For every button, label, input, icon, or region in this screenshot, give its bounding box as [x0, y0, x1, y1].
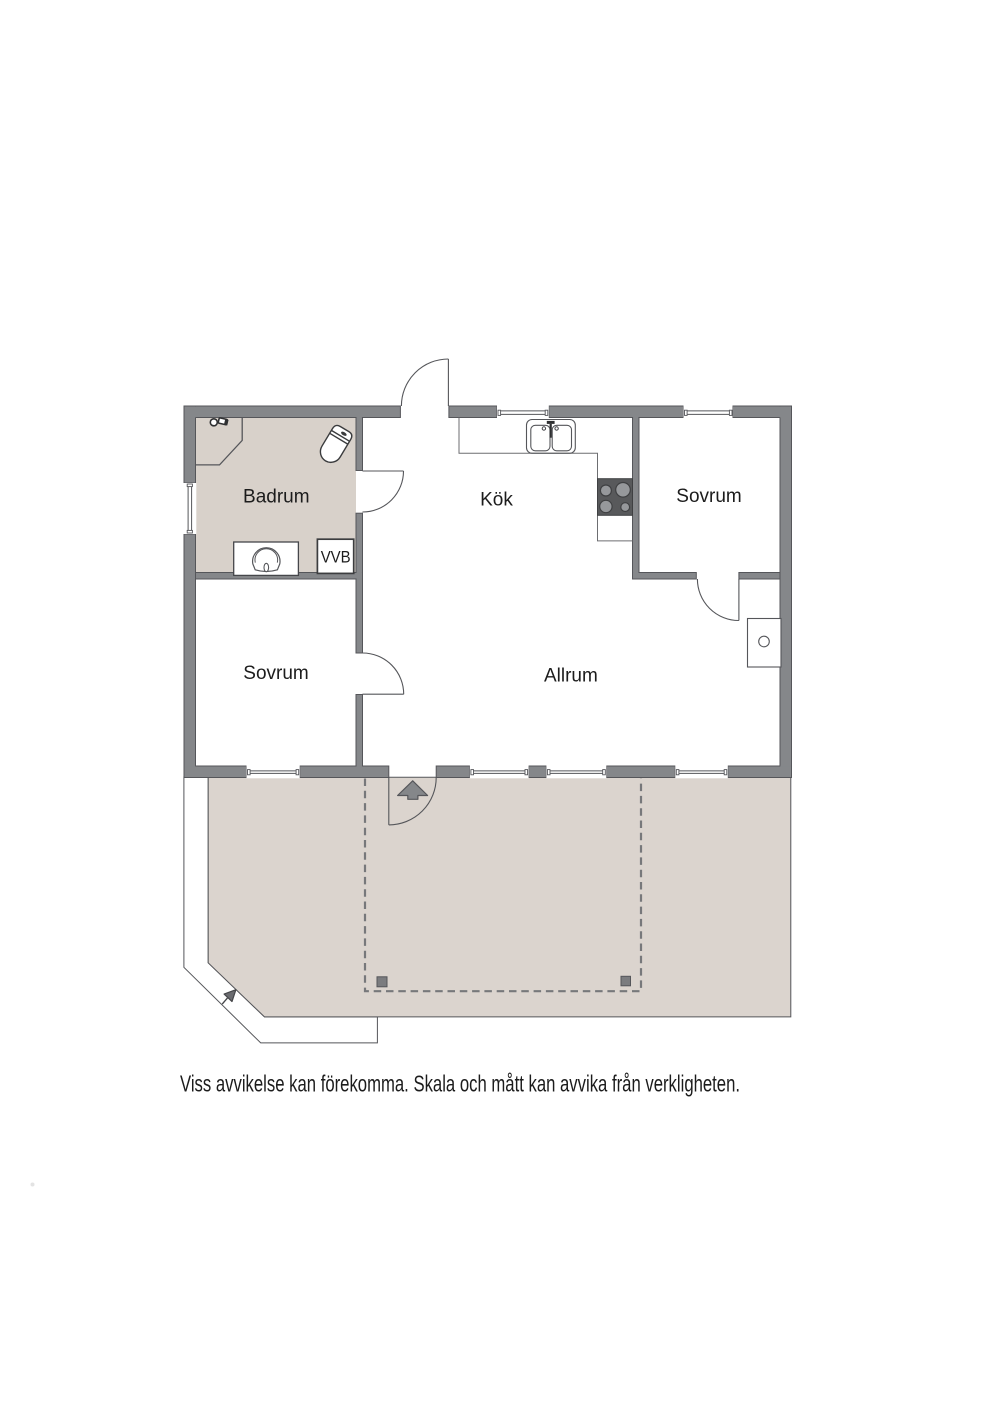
svg-text:VVB: VVB — [321, 549, 351, 567]
svg-text:Badrum: Badrum — [243, 486, 310, 507]
svg-text:Allrum: Allrum — [544, 666, 598, 687]
svg-text:Sovrum: Sovrum — [676, 486, 741, 507]
svg-text:Kök: Kök — [480, 489, 513, 510]
svg-text:Viss avvikelse kan förekomma.: Viss avvikelse kan förekomma. Skala och … — [180, 1071, 740, 1097]
svg-text:Sovrum: Sovrum — [243, 663, 308, 684]
